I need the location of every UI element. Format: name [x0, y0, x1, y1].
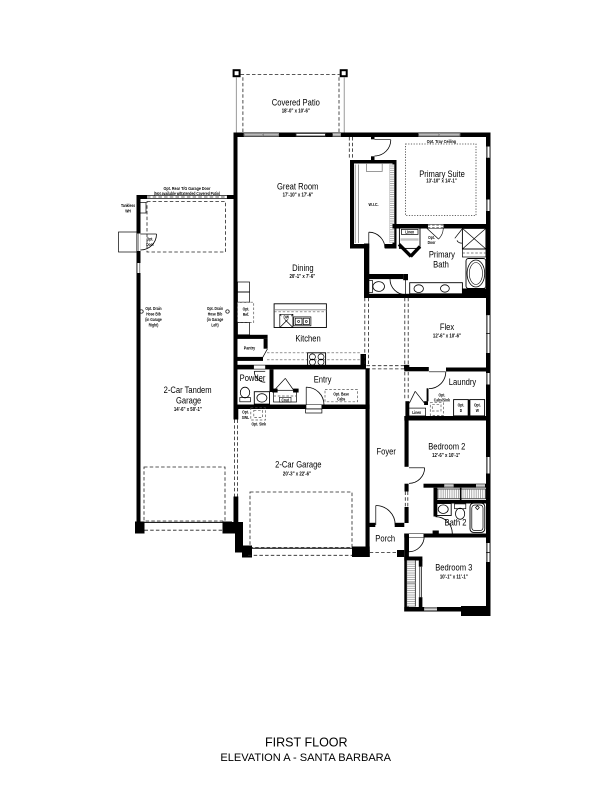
svg-text:Left): Left) — [211, 323, 219, 327]
svg-text:Dining: Dining — [292, 262, 314, 273]
svg-text:12'-6" x 10'-1": 12'-6" x 10'-1" — [432, 452, 460, 459]
svg-text:(in Garage: (in Garage — [207, 318, 224, 322]
svg-text:Opt. Drain: Opt. Drain — [145, 307, 162, 311]
svg-text:Opt. Sink: Opt. Sink — [251, 422, 267, 426]
svg-text:Opt.: Opt. — [474, 403, 481, 407]
svg-text:W.I.C.: W.I.C. — [368, 202, 378, 208]
svg-text:20'-1" x 7'-6": 20'-1" x 7'-6" — [290, 274, 316, 281]
svg-text:Great Room: Great Room — [277, 180, 318, 191]
svg-text:Porch: Porch — [375, 533, 395, 544]
svg-text:17'-10" x 17'-6": 17'-10" x 17'-6" — [283, 192, 314, 199]
svg-text:10'-1" x 11'-1": 10'-1" x 11'-1" — [440, 574, 468, 581]
svg-text:20'-3" x 22'-6": 20'-3" x 22'-6" — [283, 471, 311, 478]
svg-text:Ref.: Ref. — [243, 313, 249, 317]
svg-text:Bath 2: Bath 2 — [445, 517, 467, 528]
svg-text:DW: DW — [284, 315, 290, 319]
svg-text:Foyer: Foyer — [376, 446, 396, 457]
svg-text:Bedroom 3: Bedroom 3 — [435, 561, 472, 572]
svg-text:Garage: Garage — [176, 395, 202, 406]
svg-text:Opt. Tray Ceiling: Opt. Tray Ceiling — [427, 138, 457, 144]
svg-text:Powder: Powder — [240, 372, 266, 383]
svg-text:12'-6" x 10'-6": 12'-6" x 10'-6" — [433, 333, 461, 340]
svg-text:Laundry: Laundry — [449, 376, 477, 387]
svg-text:Linen: Linen — [405, 230, 415, 234]
svg-text:(Not available w/Extended Cove: (Not available w/Extended Covered Patio) — [154, 192, 221, 196]
svg-text:SWL: SWL — [242, 416, 250, 420]
svg-text:Opt.: Opt. — [243, 307, 250, 311]
svg-text:Opt.: Opt. — [458, 403, 465, 407]
svg-text:ELEVATION A - SANTA BARBARA: ELEVATION A - SANTA BARBARA — [220, 752, 391, 764]
svg-text:Door: Door — [428, 241, 436, 245]
svg-text:Tankless: Tankless — [121, 204, 135, 208]
svg-text:Hose Bib: Hose Bib — [146, 312, 161, 316]
svg-text:Cabs/Sink: Cabs/Sink — [434, 398, 451, 402]
svg-text:Opt.: Opt. — [147, 237, 154, 241]
svg-text:(in Garage: (in Garage — [145, 318, 162, 322]
svg-text:D: D — [460, 408, 463, 412]
svg-text:Pantry: Pantry — [244, 345, 256, 351]
svg-text:13'-10" x 14'-1": 13'-10" x 14'-1" — [426, 178, 457, 185]
svg-text:Kitchen: Kitchen — [295, 333, 321, 344]
svg-text:W: W — [476, 408, 480, 412]
svg-text:Opt. Drain: Opt. Drain — [207, 307, 224, 311]
svg-text:Opt. Base: Opt. Base — [333, 392, 349, 396]
svg-text:FIRST FLOOR: FIRST FLOOR — [265, 734, 348, 749]
svg-text:18'-0" x 10'-6": 18'-0" x 10'-6" — [282, 108, 310, 115]
svg-text:Covered Patio: Covered Patio — [272, 97, 320, 108]
svg-text:Bath: Bath — [433, 258, 449, 269]
svg-text:Opt.: Opt. — [242, 410, 249, 414]
svg-text:14'-6" x 50'-1": 14'-6" x 50'-1" — [174, 406, 202, 413]
svg-text:Opt. Rear T/G Garage Door: Opt. Rear T/G Garage Door — [164, 186, 211, 192]
svg-text:Right): Right) — [149, 323, 159, 327]
svg-text:Bedroom 2: Bedroom 2 — [428, 441, 465, 452]
svg-text:Cabs: Cabs — [337, 397, 345, 401]
svg-text:Opt.: Opt. — [428, 235, 435, 239]
svg-text:WH: WH — [125, 209, 131, 213]
svg-text:2-Car Garage: 2-Car Garage — [275, 458, 322, 469]
svg-text:Primary Suite: Primary Suite — [419, 168, 465, 179]
svg-text:Linen: Linen — [412, 410, 422, 414]
svg-text:Hose Bib: Hose Bib — [208, 312, 223, 316]
svg-text:Entry: Entry — [314, 374, 332, 385]
svg-text:Flex: Flex — [440, 321, 455, 332]
svg-text:Coat: Coat — [281, 398, 289, 402]
svg-text:Opt.: Opt. — [439, 393, 446, 397]
